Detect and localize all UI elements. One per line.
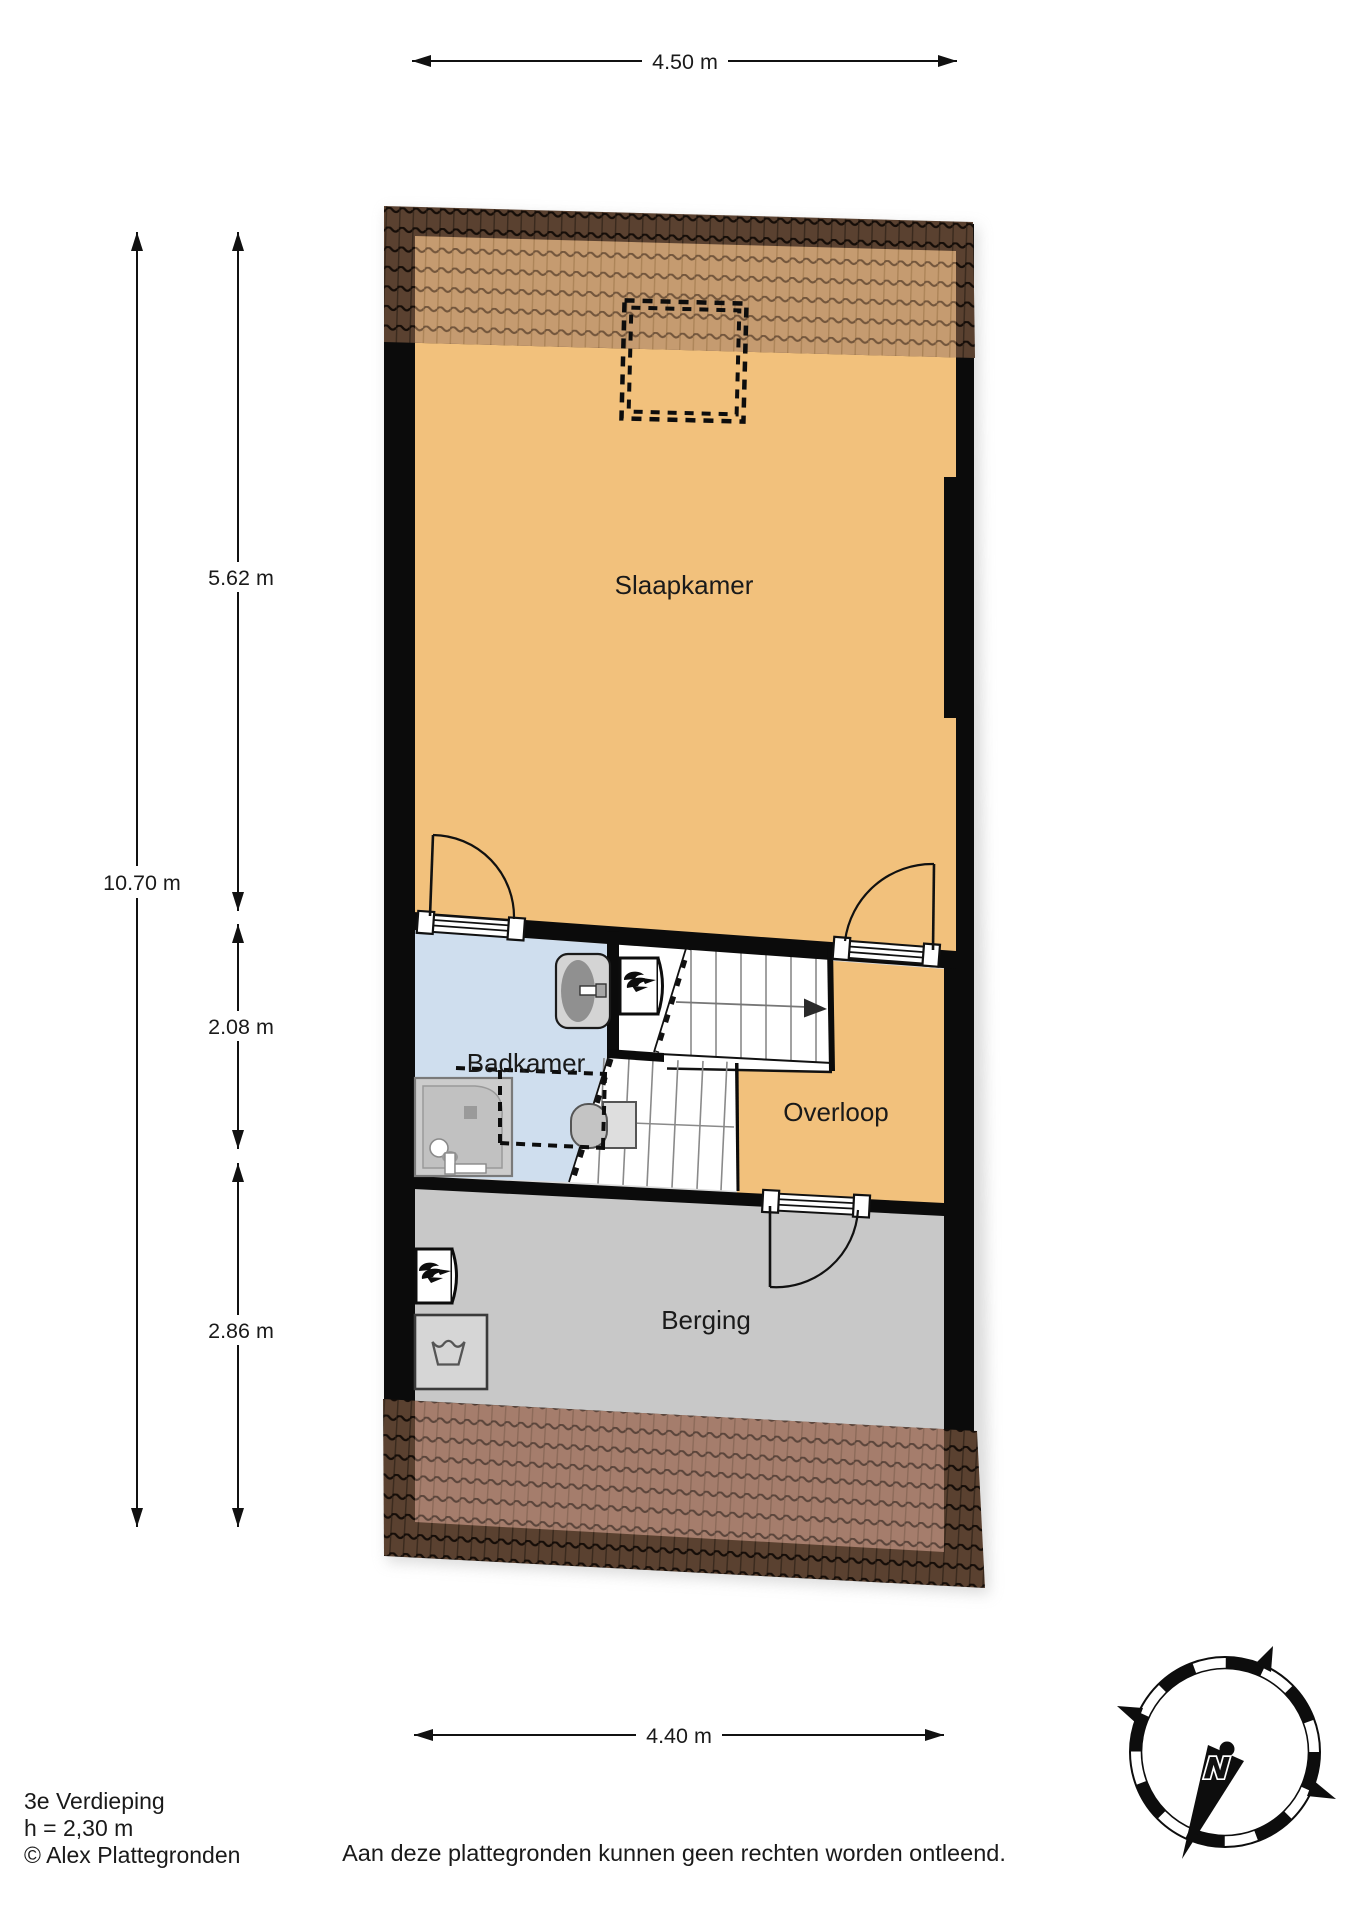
- svg-text:2.86 m: 2.86 m: [208, 1319, 274, 1343]
- svg-text:© Alex Plattegronden: © Alex Plattegronden: [24, 1842, 240, 1868]
- svg-text:Badkamer: Badkamer: [467, 1048, 586, 1078]
- svg-text:Aan deze plattegronden kunnen: Aan deze plattegronden kunnen geen recht…: [342, 1840, 1006, 1866]
- svg-text:Berging: Berging: [661, 1305, 751, 1335]
- svg-text:5.62 m: 5.62 m: [208, 566, 274, 590]
- svg-text:3e Verdieping: 3e Verdieping: [24, 1788, 165, 1814]
- svg-text:Slaapkamer: Slaapkamer: [615, 570, 754, 600]
- svg-text:4.50 m: 4.50 m: [652, 50, 718, 74]
- svg-text:Overloop: Overloop: [783, 1097, 889, 1127]
- svg-text:2.08 m: 2.08 m: [208, 1015, 274, 1039]
- svg-text:4.40 m: 4.40 m: [646, 1724, 712, 1748]
- svg-text:h = 2,30 m: h = 2,30 m: [24, 1815, 133, 1841]
- svg-text:10.70 m: 10.70 m: [103, 871, 181, 895]
